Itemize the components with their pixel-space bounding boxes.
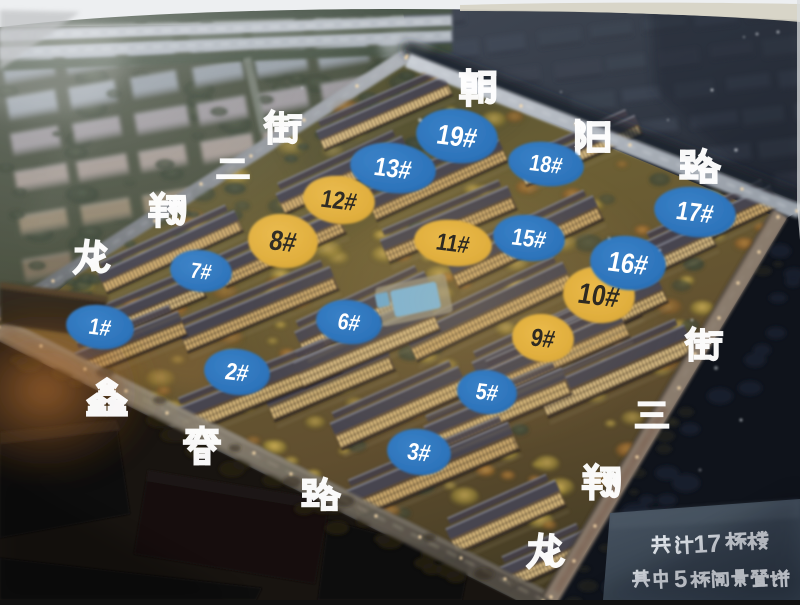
svg-text:17#: 17# [674,196,717,229]
svg-text:19#: 19# [434,118,480,155]
svg-text:11#: 11# [434,228,472,259]
svg-text:18#: 18# [527,150,565,179]
svg-text:15#: 15# [509,223,549,254]
svg-text:16#: 16# [605,245,651,282]
